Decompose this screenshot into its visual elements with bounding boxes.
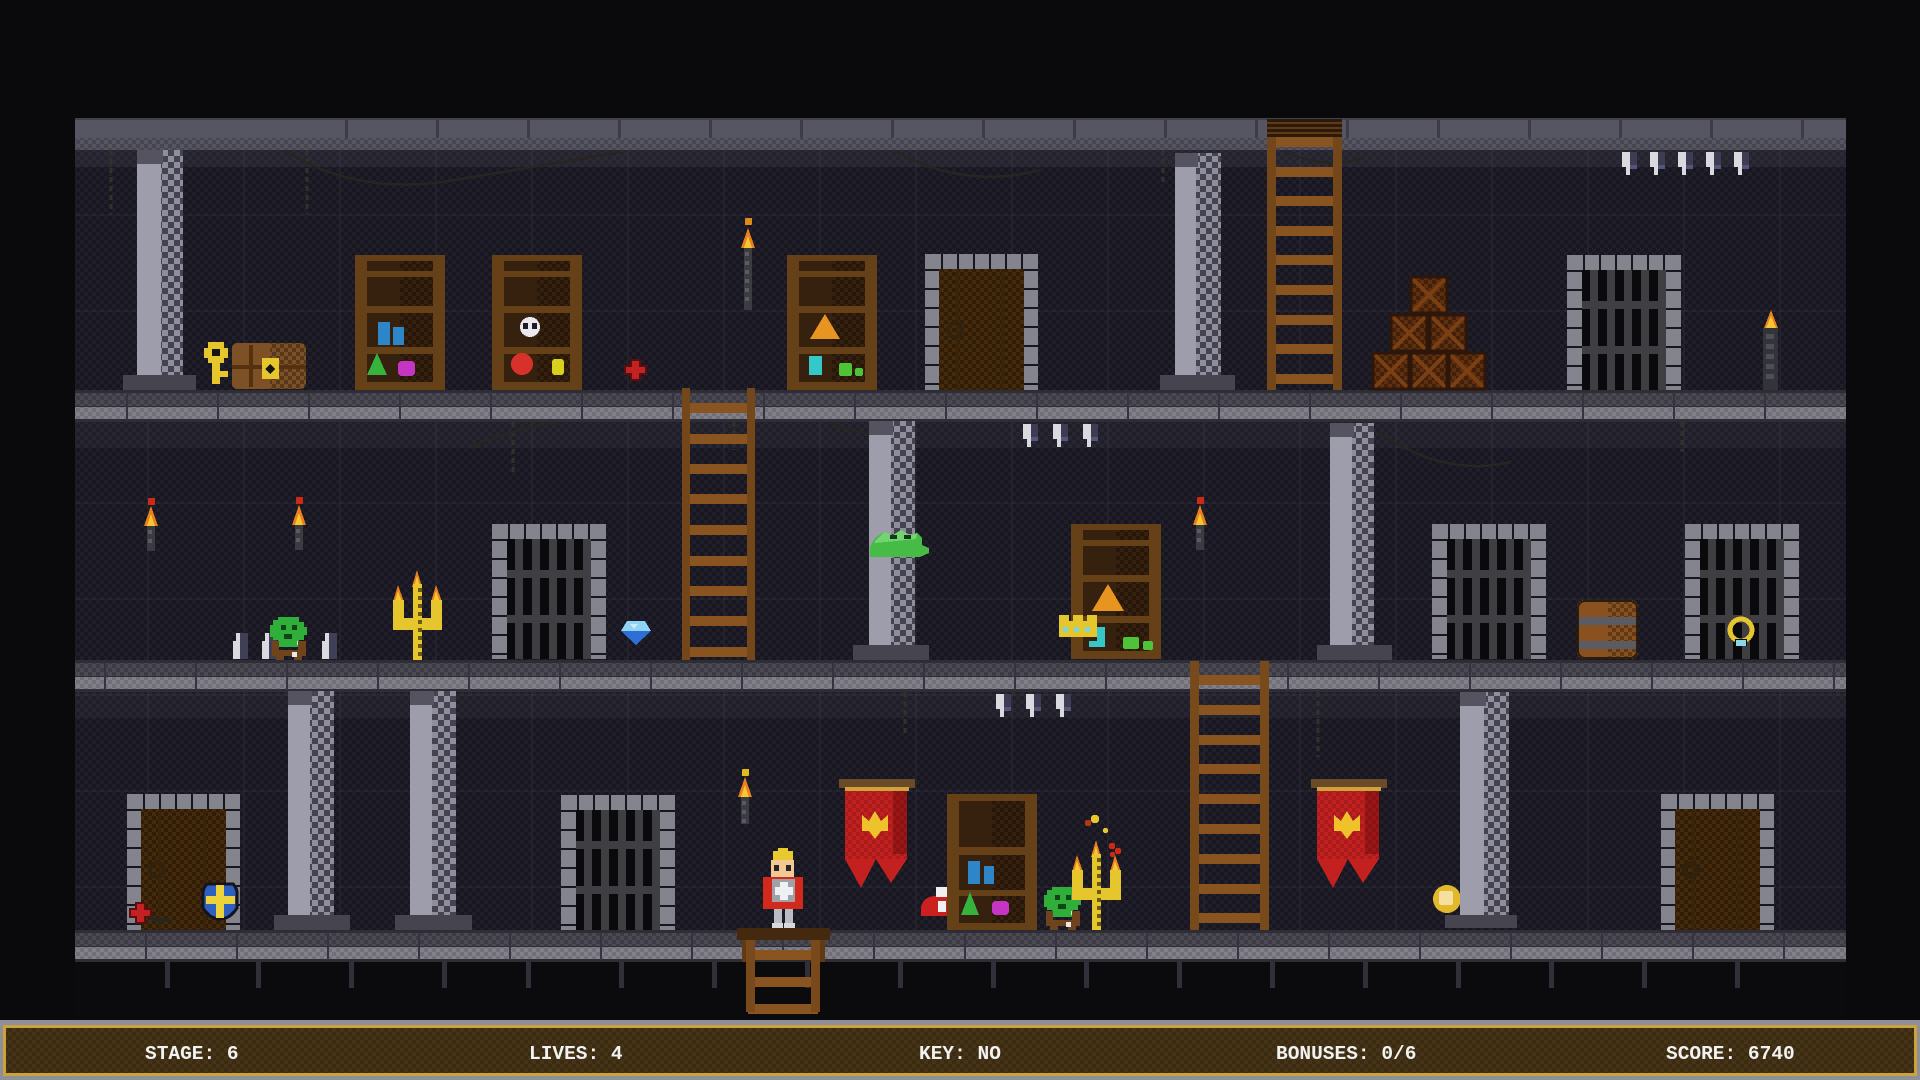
svg-text:LIVES: 4: LIVES: 4 <box>529 1043 623 1065</box>
svg-text:STAGE: 6: STAGE: 6 <box>145 1043 239 1065</box>
svg-text:KEY: NO: KEY: NO <box>919 1043 1001 1065</box>
svg-text:SCORE: 6740: SCORE: 6740 <box>1666 1043 1795 1065</box>
svg-text:BONUSES: 0/6: BONUSES: 0/6 <box>1276 1043 1416 1065</box>
